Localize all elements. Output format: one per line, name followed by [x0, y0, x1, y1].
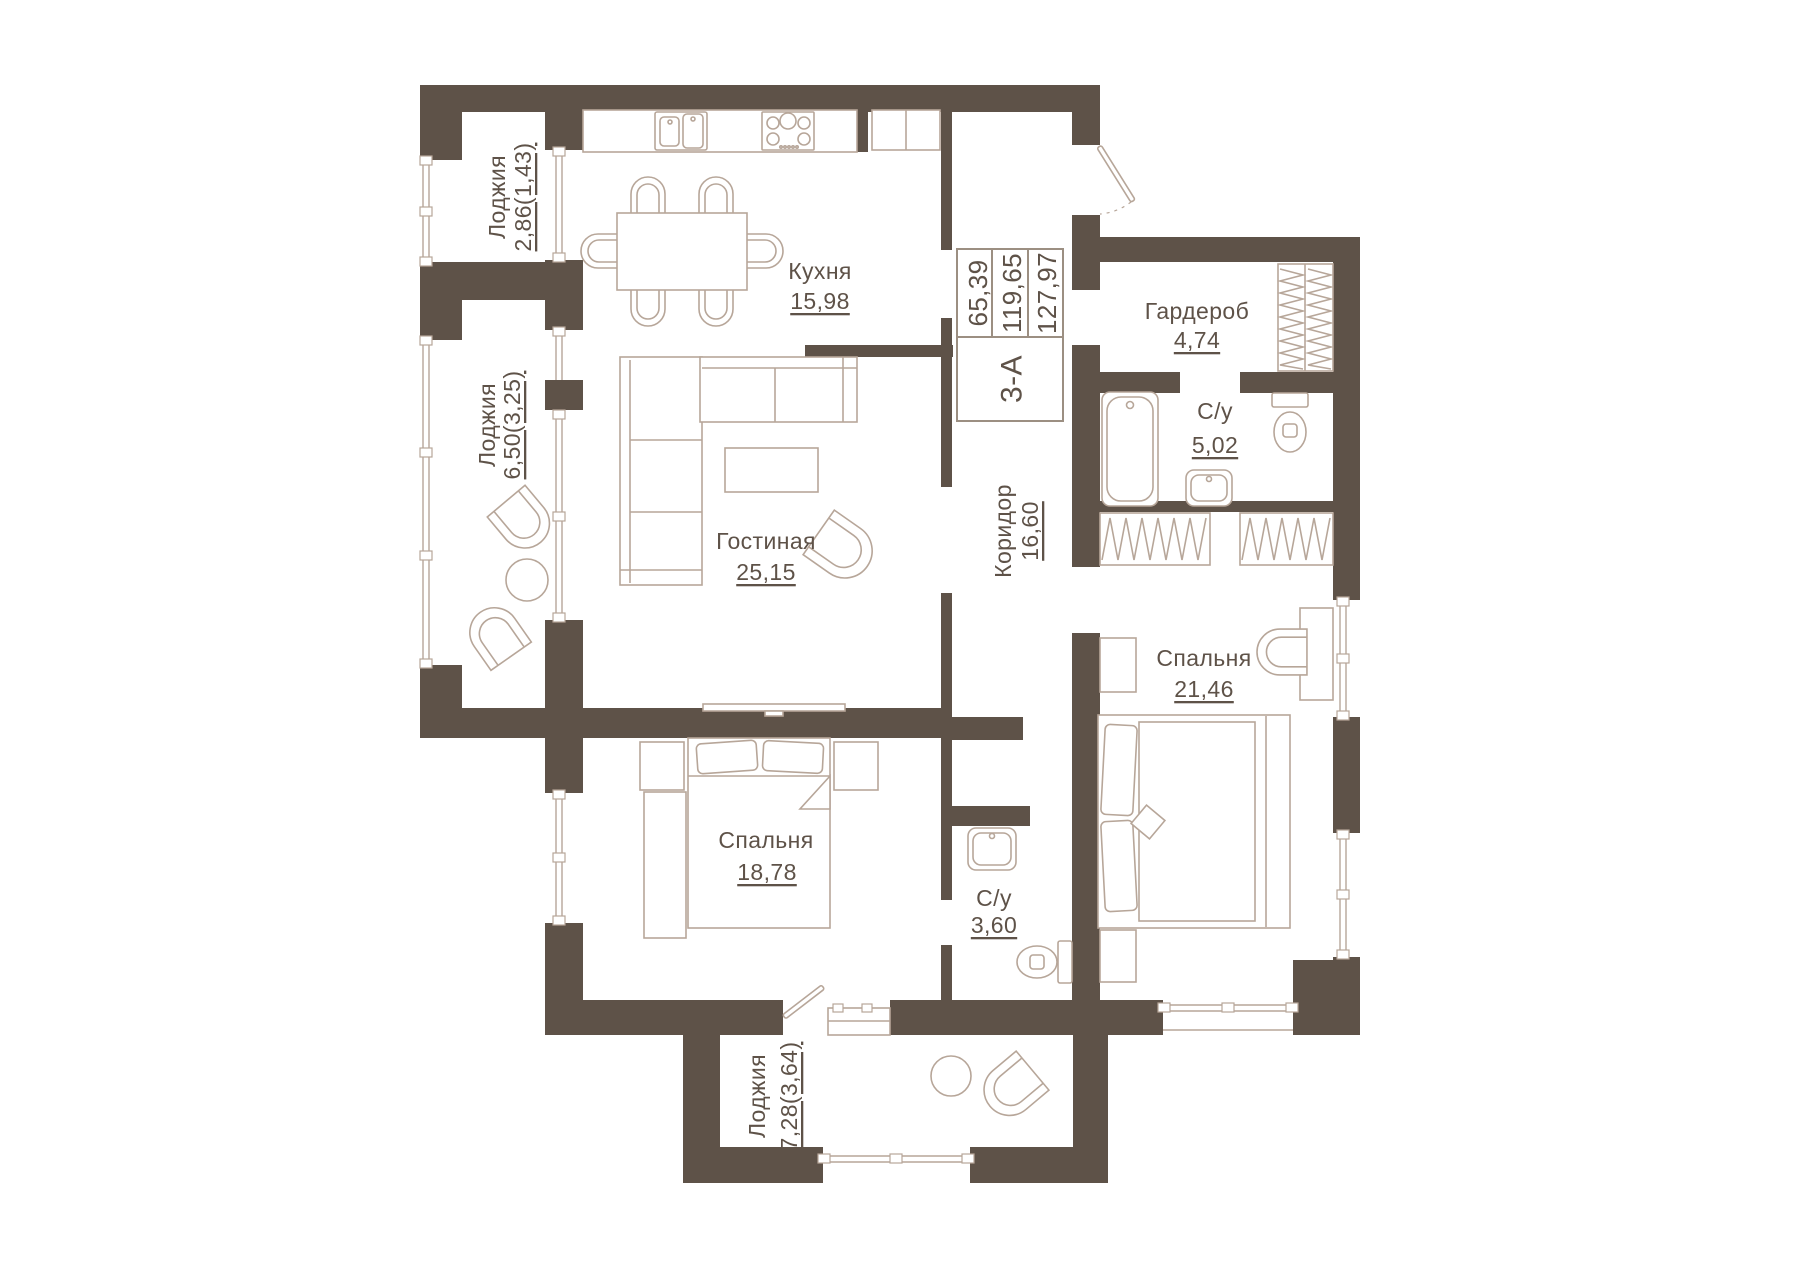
toilet-icon — [1272, 393, 1308, 452]
balcony-door-leaf — [783, 985, 825, 1019]
stamp-table: 65,39 119,65 127,97 3-А — [957, 249, 1063, 421]
label-bedroom-left-area: 18,78 — [737, 859, 797, 885]
label-bedroom-right-area: 21,46 — [1174, 676, 1234, 702]
label-living-area: 25,15 — [736, 559, 796, 585]
label-corridor-area: 16,60 — [1017, 501, 1043, 561]
dining-table — [581, 177, 783, 326]
wardrobe-unit — [1278, 264, 1333, 371]
nightstand — [640, 742, 684, 790]
label-bathroom-small-name: С/у — [976, 885, 1012, 911]
label-wardrobe-area: 4,74 — [1174, 327, 1220, 353]
label-loggia-bottom-area: 7,28(3,64) — [776, 1042, 802, 1151]
fridge-icon — [872, 110, 940, 150]
stamp-total-area: 65,39 — [963, 259, 993, 326]
loggia-bottom-furniture — [931, 1051, 1049, 1126]
sink-icon — [1186, 470, 1232, 506]
closet-zigzag — [1100, 513, 1333, 565]
nightstand — [834, 742, 878, 790]
label-loggia-left-name: Лоджия — [474, 383, 500, 467]
furniture — [460, 110, 1333, 1126]
desk-chair — [1257, 629, 1307, 675]
nightstand — [1100, 930, 1136, 982]
loggia-left-furniture — [460, 485, 559, 670]
label-wardrobe-name: Гардероб — [1145, 298, 1249, 324]
label-kitchen-area: 15,98 — [790, 288, 850, 314]
label-bedroom-right-name: Спальня — [1156, 645, 1251, 671]
stamp-unit-type: 3-А — [996, 355, 1029, 403]
label-bathroom-main-name: С/у — [1197, 398, 1233, 424]
label-bedroom-left-name: Спальня — [718, 827, 813, 853]
stamp-full-area: 127,97 — [1032, 252, 1062, 334]
label-bathroom-main-area: 5,02 — [1192, 432, 1238, 458]
label-loggia-bottom-name: Лоджия — [744, 1054, 770, 1138]
label-loggia-left-area: 6,50(3,25) — [499, 371, 525, 480]
nightstand — [1100, 638, 1136, 692]
sink-icon — [968, 828, 1016, 870]
bed-right — [1098, 715, 1290, 928]
label-loggia-top-name: Лоджия — [484, 155, 510, 239]
toilet-icon — [1017, 941, 1072, 983]
bathtub-icon — [1102, 392, 1158, 506]
coffee-table — [725, 448, 818, 492]
entry-door-leaf — [1097, 145, 1135, 202]
label-bathroom-small-area: 3,60 — [971, 912, 1017, 938]
label-corridor-name: Коридор — [990, 484, 1016, 578]
floor-plan-page: 65,39 119,65 127,97 3-А Лоджия 2,86(1,43… — [0, 0, 1806, 1277]
kitchen-sink-icon — [655, 112, 707, 150]
label-kitchen-name: Кухня — [788, 258, 852, 284]
stamp-living-area: 119,65 — [997, 253, 1027, 333]
dresser — [644, 792, 686, 938]
kitchen-counter — [583, 110, 857, 152]
label-living-name: Гостиная — [716, 528, 816, 554]
label-loggia-top-area: 2,86(1,43) — [510, 143, 536, 252]
floor-plan-svg: 65,39 119,65 127,97 3-А Лоджия 2,86(1,43… — [0, 0, 1806, 1277]
stove-icon — [762, 112, 814, 150]
